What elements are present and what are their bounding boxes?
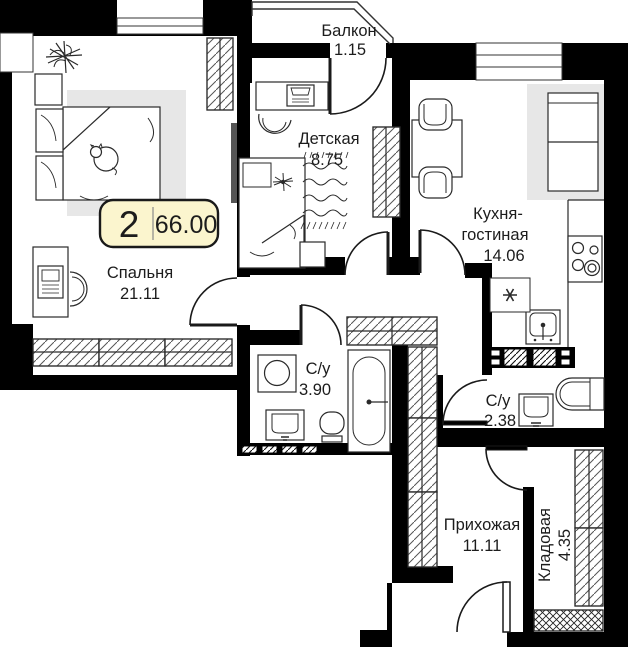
bathroom-big-door <box>301 305 341 345</box>
storage-shelf <box>534 610 603 631</box>
wardrobe <box>408 347 437 567</box>
washing-machine <box>258 355 296 392</box>
kids-bed <box>239 158 305 268</box>
sofa <box>527 84 604 200</box>
bedroom-door <box>190 278 237 325</box>
kitchen-window <box>476 43 562 80</box>
floor-plan-svg: Спальня 21.11 Детская 8.75 Балкон 1.15 К… <box>0 0 628 647</box>
shower-tub <box>556 378 604 410</box>
badge-total-area: 66.00 <box>155 211 218 239</box>
kids-chair <box>259 114 291 133</box>
hallway-area: 11.11 <box>463 537 502 555</box>
kitchen-door <box>420 230 465 275</box>
kitchen-label-2: гостиная <box>461 226 528 244</box>
wardrobe <box>373 127 400 217</box>
desk <box>33 247 68 317</box>
wardrobe <box>33 339 232 366</box>
wardrobe <box>347 317 437 345</box>
badge-rooms-count: 2 <box>119 204 140 245</box>
bedroom-left-window <box>0 33 33 72</box>
bed <box>63 90 186 216</box>
storage-label: Кладовая <box>536 508 554 582</box>
chair <box>419 167 452 198</box>
laptop-icon <box>287 85 314 106</box>
kitchen-area: 14.06 <box>483 247 524 265</box>
balcony-label: Балкон <box>321 22 376 40</box>
sink <box>266 410 304 440</box>
floor-plan: Спальня 21.11 Детская 8.75 Балкон 1.15 К… <box>0 0 628 647</box>
bedroom-top-window <box>117 18 203 34</box>
bathroom-small-fixtures <box>519 378 604 426</box>
kids-label: Детская <box>298 130 359 148</box>
laptop-icon <box>38 266 63 298</box>
wardrobe <box>575 450 603 606</box>
kids-nightstand <box>300 242 325 267</box>
desk-chair <box>70 272 87 306</box>
chair <box>419 99 452 130</box>
bathroom-small-door <box>443 380 487 425</box>
kids-furniture <box>239 82 400 268</box>
kids-room-door <box>345 232 388 275</box>
bathroom-big-area: 3.90 <box>299 381 331 399</box>
toilet <box>519 394 553 426</box>
bathroom-small-area: 2.38 <box>484 412 516 430</box>
bathtub <box>348 350 390 452</box>
kitchen-label-1: Кухня- <box>473 205 523 223</box>
hallway-label: Прихожая <box>444 516 520 534</box>
hallway-furniture <box>408 347 437 567</box>
wardrobe <box>207 38 233 110</box>
kitchen-sink <box>526 310 560 344</box>
bathroom-small-label: С/у <box>486 392 512 410</box>
storage-area: 4.35 <box>556 529 574 561</box>
stove <box>568 236 602 282</box>
sliding-door <box>231 123 237 203</box>
balcony-area: 1.15 <box>334 41 366 59</box>
fridge-niche <box>490 278 530 312</box>
toilet <box>320 412 344 442</box>
nightstand <box>35 74 63 200</box>
balcony-door <box>330 58 386 114</box>
entrance-door <box>457 582 510 632</box>
apartment-badge: 2 66.00 <box>100 200 218 247</box>
bedroom-area: 21.11 <box>120 285 160 303</box>
kids-area: 8.75 <box>311 151 343 169</box>
bathroom-big-label: С/у <box>306 360 332 378</box>
bedroom-label: Спальня <box>107 264 173 282</box>
kids-desk <box>256 82 328 110</box>
plant-icon <box>46 41 82 73</box>
storage-door <box>486 446 527 490</box>
